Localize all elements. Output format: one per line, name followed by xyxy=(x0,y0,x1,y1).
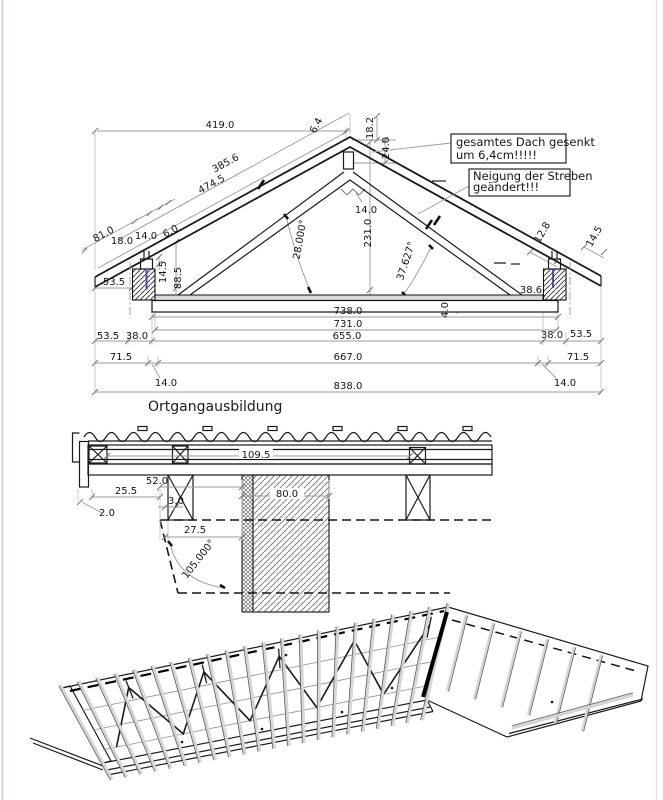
dim-wall-h: 88.5 xyxy=(173,267,184,289)
cad-drawing-page: 419.0 6.4 18.2 24.0 385.6 474.5 81.0 18.… xyxy=(0,0,663,800)
dim-25-5: 25.5 xyxy=(115,486,137,497)
dim-right-a: 12.8 xyxy=(533,220,554,245)
dim-span-top: 419.0 xyxy=(206,120,235,131)
chain-l535: 53.5 xyxy=(97,331,119,342)
top-plate xyxy=(155,295,543,301)
chain-r715: 71.5 xyxy=(567,352,589,363)
chain-l380: 38.0 xyxy=(126,331,148,342)
verge-board xyxy=(80,442,89,488)
chain-r140: 14.0 xyxy=(554,378,576,389)
dim-slab-t: 4.0 xyxy=(440,302,451,318)
ridge-beam-section xyxy=(344,152,354,169)
note2-line2: geändert!!! xyxy=(473,180,539,194)
tile-profile xyxy=(84,433,491,442)
dim-post-h: 14.5 xyxy=(158,261,169,283)
chain-r380: 38.0 xyxy=(541,330,563,341)
dim-27-5: 27.5 xyxy=(184,525,206,536)
dim-drop-b: 24.0 xyxy=(381,137,392,159)
chain-r535: 53.5 xyxy=(570,329,592,340)
plate-band xyxy=(88,464,492,475)
dim-drop-a: 18.2 xyxy=(365,117,376,139)
dim-eave-c: 14.0 xyxy=(135,231,157,242)
chain-838: 838.0 xyxy=(334,381,363,392)
technical-drawing-svg: 419.0 6.4 18.2 24.0 385.6 474.5 81.0 18.… xyxy=(0,0,663,800)
chain-738: 738.0 xyxy=(334,306,363,317)
verge-detail-drawing: 109.5 52.0 25.5 3.0 2.0 27.5 105.000° 80… xyxy=(73,427,493,613)
truss-section-drawing: 419.0 6.4 18.2 24.0 385.6 474.5 81.0 18.… xyxy=(82,113,607,415)
dim-ridge-offset: 6.4 xyxy=(308,116,325,135)
note1-line1: gesamtes Dach gesenkt xyxy=(456,135,595,149)
wing-battens xyxy=(447,615,603,732)
dim-board-len: 109.5 xyxy=(242,450,271,461)
wing-hidden-line xyxy=(452,620,636,671)
right-masonry-wall xyxy=(544,269,567,300)
dim-2: 2.0 xyxy=(99,508,115,519)
chain-667: 667.0 xyxy=(334,352,363,363)
dim-3: 3.0 xyxy=(168,496,184,507)
tile-end-cap xyxy=(73,433,80,462)
tile-nibs xyxy=(138,427,472,431)
dim-angle-105: 105.000° xyxy=(180,538,217,581)
note1-line2: um 6,4cm!!!!! xyxy=(456,148,537,162)
dim-left-h1: 53.5 xyxy=(103,277,125,288)
chain-655: 655.0 xyxy=(333,331,362,342)
chain-l140: 14.0 xyxy=(155,378,177,389)
chain-l715: 71.5 xyxy=(110,352,132,363)
dim-eave-d: 6.0 xyxy=(161,223,180,240)
dim-right-b: 14.5 xyxy=(585,224,606,249)
dim-angle-left: 28.000° xyxy=(292,219,310,260)
dim-wall-w: 80.0 xyxy=(276,489,298,500)
dim-52: 52.0 xyxy=(146,476,168,487)
dim-rafter-len-b: 474.5 xyxy=(197,173,227,196)
dim-angle-right: 37.627° xyxy=(395,241,418,282)
detail-title: Ortgangausbildung xyxy=(148,399,282,415)
dim-rafter-len-a: 385.6 xyxy=(211,152,241,175)
chain-731: 731.0 xyxy=(334,319,363,330)
left-masonry-wall xyxy=(133,269,156,300)
dim-ridge-w: 14.0 xyxy=(355,205,377,216)
dim-eave-b: 18.0 xyxy=(111,236,133,247)
roof-battens xyxy=(59,603,449,780)
dim-right-c: 38.6 xyxy=(520,285,542,296)
dim-height-center: 231.0 xyxy=(363,219,374,248)
isometric-roof-view xyxy=(30,603,648,780)
sheathing-band xyxy=(88,445,492,464)
